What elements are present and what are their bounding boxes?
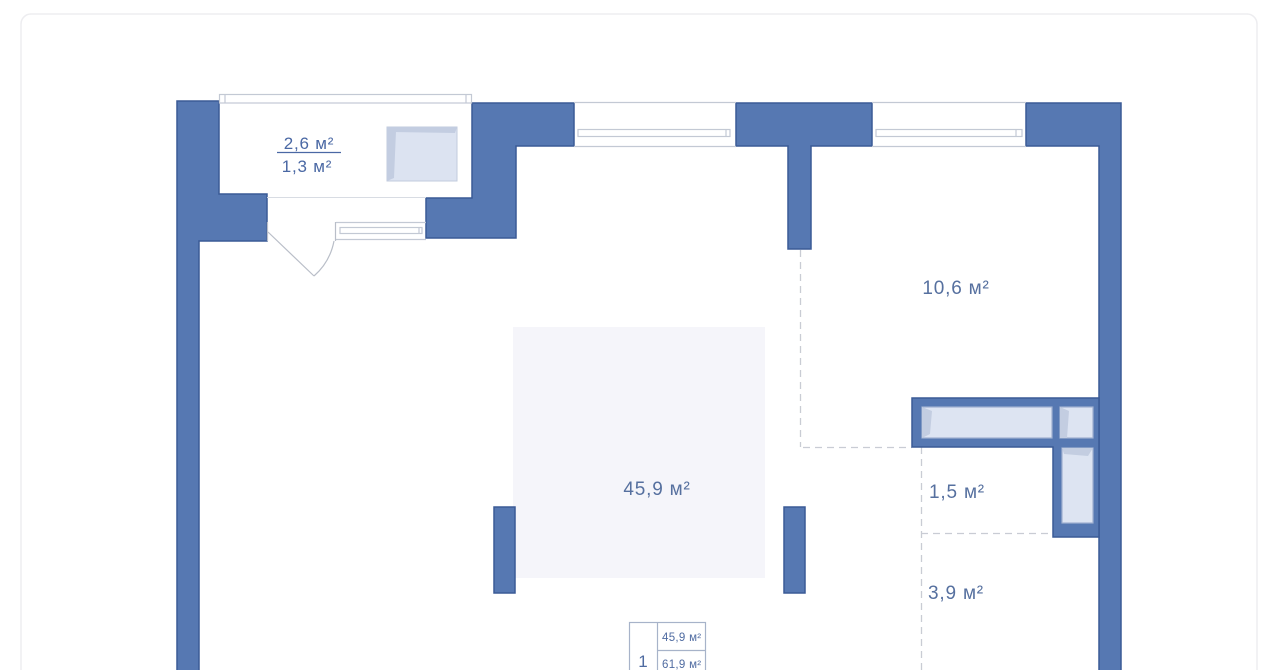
room-label-living: 45,9 м² [623, 479, 690, 500]
balcony-cabinet [387, 127, 457, 181]
balcony-area-reduced: 1,3 м² [282, 157, 333, 176]
stamp-total-area: 61,9 м² [662, 659, 701, 670]
pillar-left [494, 507, 515, 593]
apartment-stamp: 1 45,9 м² 61,9 м² [630, 623, 706, 670]
pillar-right [784, 507, 805, 593]
stamp-living-area: 45,9 м² [662, 632, 701, 644]
floorplan-svg: 2,6 м² 1,3 м² 10,6 м² 45,9 м² 1,5 м² 3,9… [0, 0, 1280, 670]
floorplan-viewport: 2,6 м² 1,3 м² 10,6 м² 45,9 м² 1,5 м² 3,9… [0, 0, 1280, 670]
room-label-bathroom: 1,5 м² [929, 482, 985, 503]
balcony-area-full: 2,6 м² [284, 134, 335, 153]
stamp-rooms-count: 1 [638, 652, 647, 670]
living-zone-highlight [513, 327, 765, 578]
room-label-hallway: 3,9 м² [928, 583, 984, 604]
room-label-bedroom: 10,6 м² [922, 278, 989, 299]
